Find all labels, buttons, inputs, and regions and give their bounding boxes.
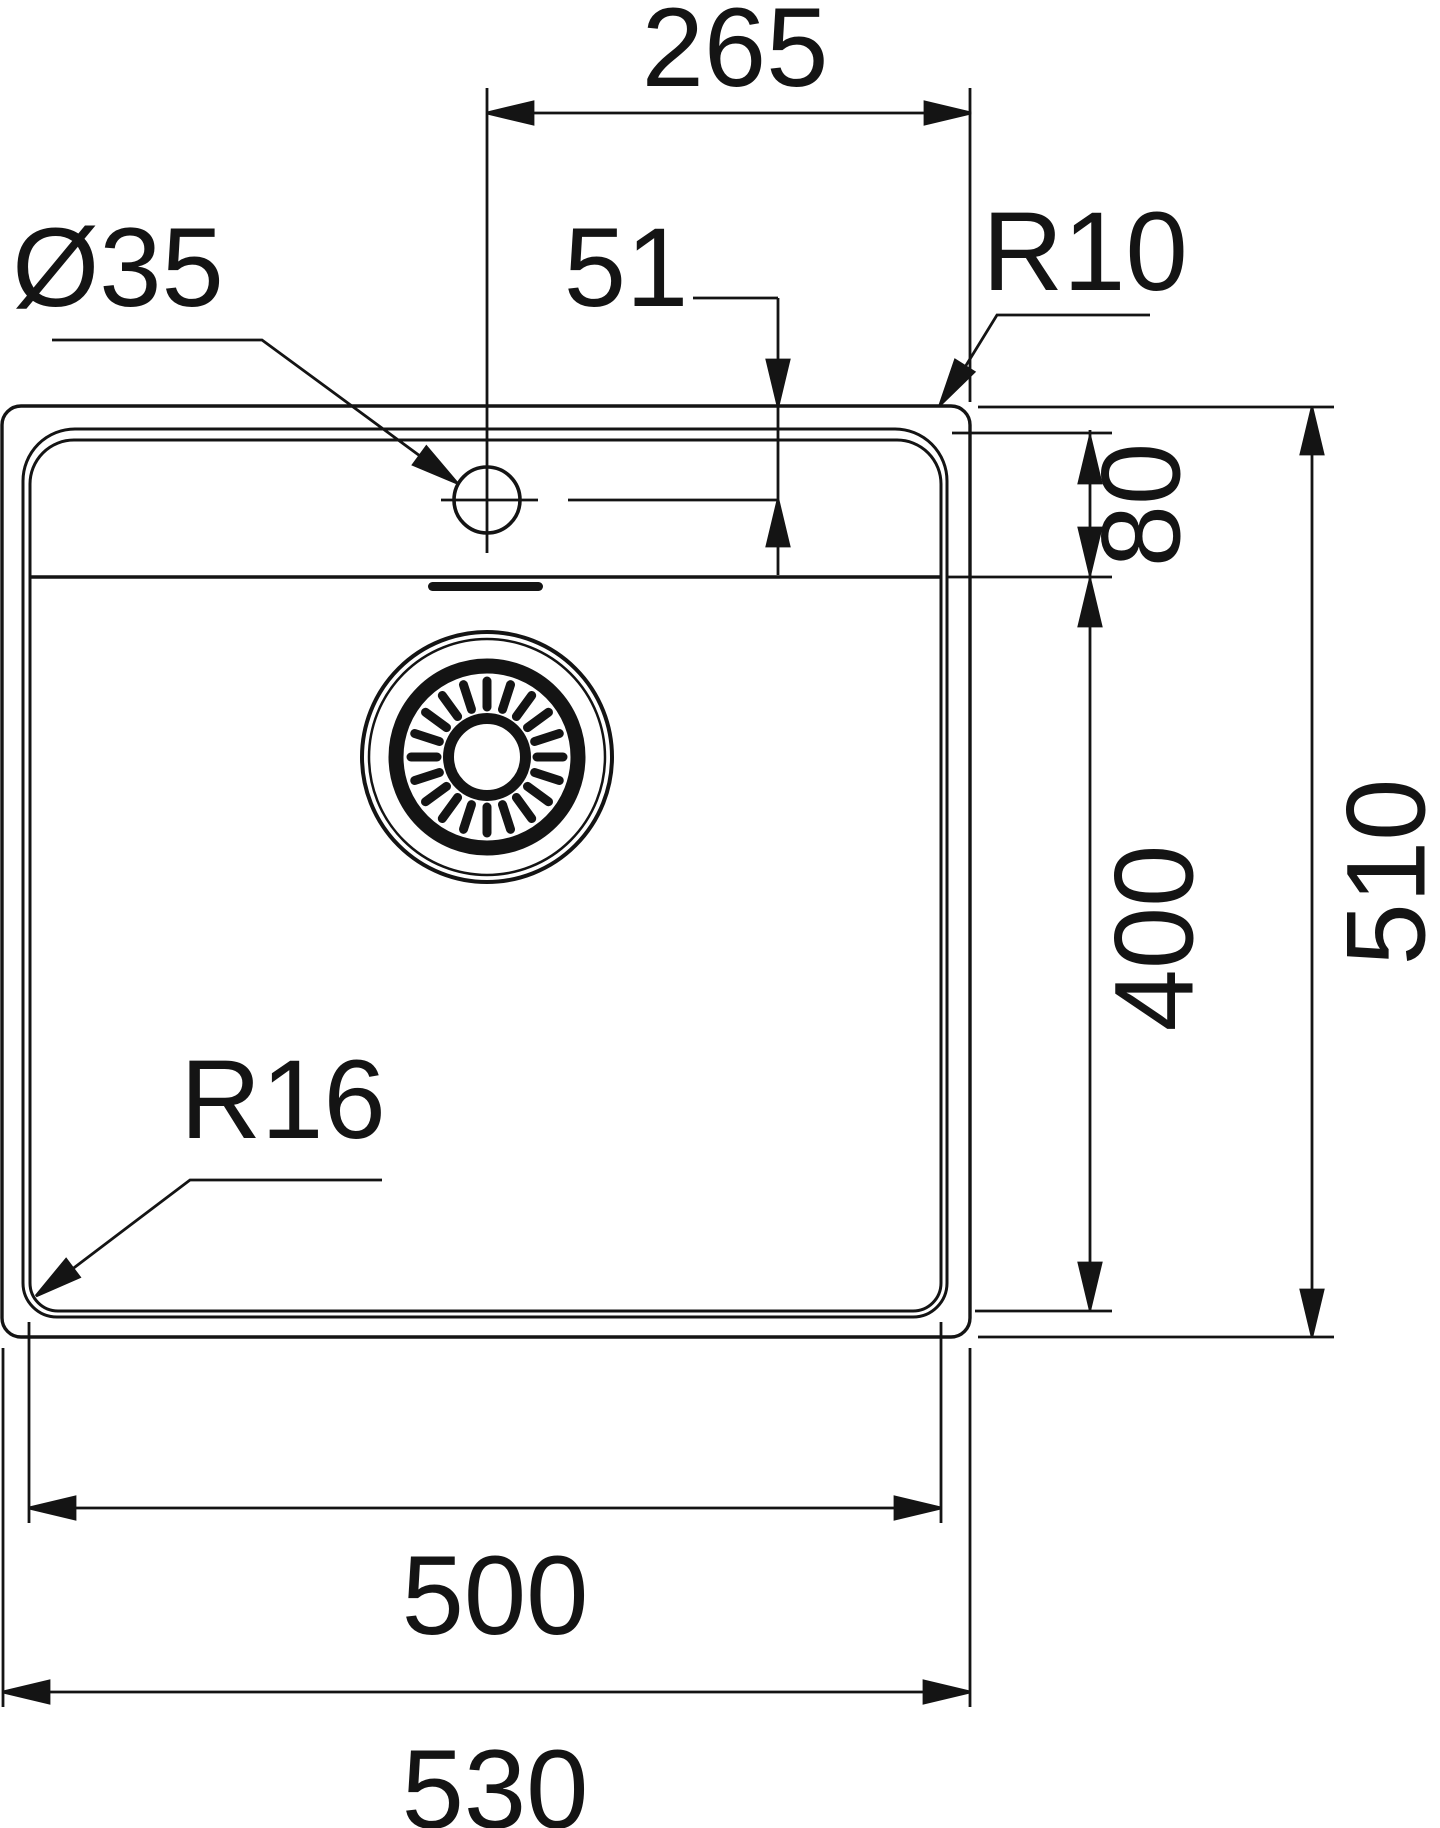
corner-radius-r10-label: R10 — [982, 189, 1187, 314]
leader-dia35 — [52, 340, 450, 478]
leader-r10 — [946, 315, 1150, 398]
dim-400-label: 400 — [1092, 845, 1217, 1032]
dim-51-label: 51 — [564, 205, 689, 330]
dim-530-label: 530 — [402, 1727, 589, 1828]
sink-rim-outer-line — [23, 429, 947, 1317]
dim-80-label: 80 — [1079, 443, 1204, 568]
dim-510-label: 510 — [1324, 779, 1440, 966]
drain-center-ring — [449, 719, 526, 796]
corner-radius-r16-label: R16 — [180, 1037, 385, 1162]
leader-r16 — [42, 1180, 382, 1292]
overflow-slot — [428, 582, 543, 591]
dimension-labels: 265 Ø35 51 R10 80 400 510 R16 500 530 — [12, 0, 1440, 1828]
dim-500-label: 500 — [402, 1533, 589, 1658]
hole-diameter-label: Ø35 — [12, 205, 224, 330]
dim-265-label: 265 — [642, 0, 829, 110]
drain-slots — [411, 681, 563, 833]
sink-technical-drawing: 265 Ø35 51 R10 80 400 510 R16 500 530 — [0, 0, 1440, 1828]
drain-outer-ring-inner — [369, 639, 605, 875]
drain-strainer — [362, 632, 612, 882]
